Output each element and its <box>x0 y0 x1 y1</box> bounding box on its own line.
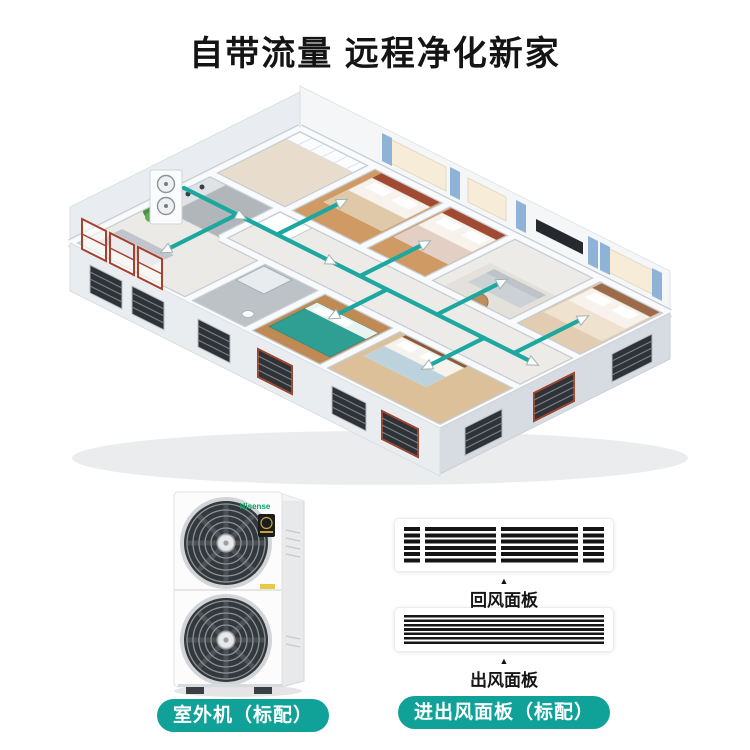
panels-section: ▲ 回风面板 ▲ 出风面板 进出风面板（标配） <box>390 518 618 729</box>
pointer-up-icon: ▲ <box>390 656 618 666</box>
return-panel-grille <box>404 527 604 563</box>
page-title: 自带流量 远程净化新家 <box>0 26 750 75</box>
unit-foot-left <box>186 687 204 694</box>
page: 自带流量 远程净化新家 <box>0 0 750 750</box>
fan-grille-top <box>182 499 270 587</box>
unit-side-face <box>282 494 304 687</box>
outdoor-unit-badge: 室外机（标配） <box>157 699 329 732</box>
panel-badge: 进出风面板（标配） <box>398 696 610 729</box>
pointer-up-icon: ▲ <box>390 576 618 586</box>
outdoor-unit-section: Hisense 室外机（标配） <box>148 486 338 732</box>
unit-label-sticker <box>260 584 275 589</box>
fan-grille-bottom <box>182 596 270 684</box>
outlet-panel-caption: ▲ 出风面板 <box>390 656 618 684</box>
return-panel-caption: ▲ 回风面板 <box>390 576 618 604</box>
return-air-panel-image <box>394 518 614 572</box>
unit-base <box>178 684 282 687</box>
house-floorplan-illustration <box>30 78 710 490</box>
unit-foot-right <box>254 687 272 694</box>
outlet-air-panel-image <box>394 607 614 652</box>
badge-bar <box>260 531 273 533</box>
outlet-panel-grille <box>404 615 604 644</box>
outdoor-unit-image: Hisense <box>170 486 316 698</box>
hisense-logo: Hisense <box>240 502 271 511</box>
